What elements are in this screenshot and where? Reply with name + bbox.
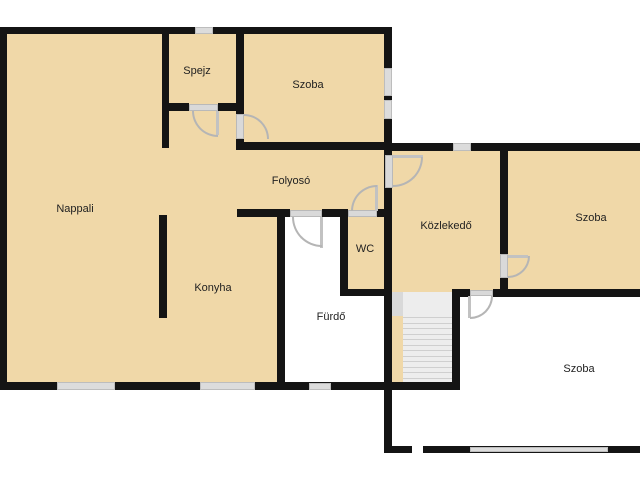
- stair-tread: [403, 367, 452, 368]
- window: [309, 383, 331, 390]
- stair-tread: [403, 317, 452, 318]
- window: [195, 27, 213, 34]
- wall: [493, 289, 640, 297]
- window: [57, 382, 115, 390]
- room-label-furdo: Fürdő: [317, 311, 346, 323]
- floor-area: [340, 296, 385, 382]
- stair-tread: [403, 350, 452, 351]
- room-label-kozlekedo: Közlekedő: [420, 220, 471, 232]
- wall: [385, 446, 412, 453]
- wall: [452, 289, 460, 390]
- wall: [277, 217, 285, 385]
- wall: [237, 209, 290, 217]
- wall: [340, 217, 348, 292]
- wall: [236, 142, 392, 150]
- stair-tread: [403, 356, 452, 357]
- door-frame: [385, 155, 393, 188]
- stair-tread: [403, 334, 452, 335]
- staircase: [403, 292, 452, 383]
- door-frame: [189, 104, 218, 111]
- stair-tread: [403, 345, 452, 346]
- window: [470, 447, 608, 452]
- room-label-folyoso: Folyosó: [272, 175, 311, 187]
- room-label-konyha: Konyha: [194, 282, 231, 294]
- room-label-spejz: Spejz: [183, 65, 211, 77]
- wall: [218, 103, 236, 111]
- wall: [392, 143, 453, 151]
- wall: [340, 289, 392, 296]
- wall: [471, 143, 640, 151]
- stair-tread: [403, 378, 452, 379]
- room-label-szoba-top-right: Szoba: [575, 212, 606, 224]
- stair-tread: [403, 372, 452, 373]
- wall: [377, 209, 390, 217]
- stair-landing-block: [392, 292, 403, 316]
- wall: [0, 27, 7, 390]
- door-frame: [348, 210, 377, 217]
- room-label-szoba-top-left: Szoba: [292, 79, 323, 91]
- stair-tread: [403, 328, 452, 329]
- room-label-nappali: Nappali: [56, 203, 93, 215]
- window: [200, 382, 255, 390]
- wall: [322, 209, 348, 217]
- wall: [159, 215, 167, 318]
- stair-tread: [403, 339, 452, 340]
- floor-plan: NappaliSpejzSzobaFolyosóKonyhaWCFürdőKöz…: [0, 0, 640, 480]
- door-frame: [500, 254, 508, 278]
- door-frame: [290, 210, 322, 217]
- window: [384, 100, 392, 119]
- stair-tread: [403, 323, 452, 324]
- door-frame: [236, 114, 244, 139]
- wall: [500, 151, 508, 254]
- floor-area: [392, 316, 403, 383]
- wall: [162, 103, 189, 111]
- stair-tread: [403, 361, 452, 362]
- door-swing-arc: [470, 296, 493, 319]
- room-label-szoba-bottom: Szoba: [563, 363, 594, 375]
- window: [453, 143, 471, 151]
- wall: [162, 34, 169, 148]
- window: [384, 68, 392, 96]
- room-label-wc: WC: [356, 243, 374, 255]
